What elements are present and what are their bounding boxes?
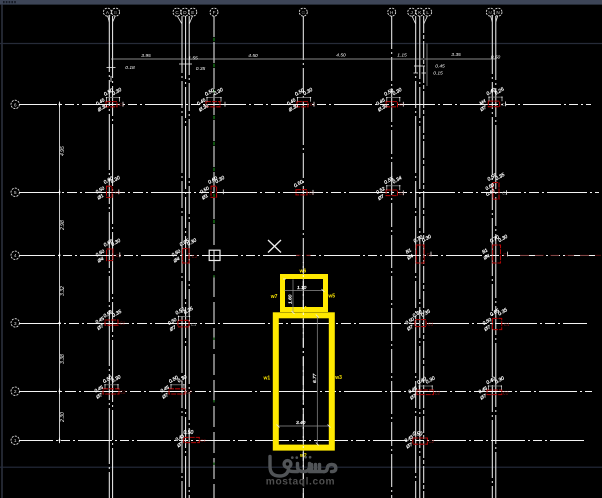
svg-text:4.50: 4.50 [336, 53, 346, 59]
svg-text:1: 1 [14, 438, 17, 444]
svg-text:1.55: 1.55 [188, 56, 198, 62]
svg-text:G: G [302, 10, 306, 15]
svg-text:H: H [390, 10, 393, 15]
svg-text:C1: C1 [192, 254, 198, 259]
svg-text:F: F [213, 10, 216, 15]
svg-text:3: 3 [14, 321, 17, 327]
svg-text:C2: C2 [120, 389, 126, 394]
svg-text:C1: C1 [200, 438, 206, 443]
svg-text:C1: C1 [309, 190, 315, 195]
svg-text:0.15: 0.15 [433, 71, 443, 77]
svg-text:0.35: 0.35 [196, 66, 206, 72]
svg-text:6: 6 [14, 102, 17, 108]
svg-text:C1: C1 [504, 322, 510, 327]
svg-text:0.18: 0.18 [125, 65, 135, 71]
svg-text:C1: C1 [399, 191, 405, 196]
svg-text:C2: C2 [435, 390, 441, 395]
svg-text:3.95: 3.95 [141, 53, 151, 59]
svg-text:C2: C2 [503, 390, 509, 395]
svg-text:5: 5 [14, 190, 17, 196]
svg-text:3.32: 3.32 [60, 286, 66, 296]
svg-text:0.50: 0.50 [413, 432, 423, 438]
svg-text:w3: w3 [334, 375, 342, 381]
svg-text:C1: C1 [310, 102, 316, 107]
svg-text:3.38: 3.38 [60, 354, 66, 364]
svg-text:4.95: 4.95 [60, 146, 66, 156]
svg-text:C1: C1 [120, 321, 126, 326]
svg-text:C1: C1 [116, 253, 122, 258]
svg-text:2: 2 [14, 389, 17, 395]
svg-text:N: N [496, 10, 499, 15]
svg-text:J: J [411, 10, 413, 15]
svg-text:4: 4 [14, 253, 17, 259]
svg-text:w6: w6 [299, 269, 307, 275]
svg-text:C2: C2 [428, 439, 434, 444]
svg-text:0.45: 0.45 [435, 64, 445, 70]
svg-text:3.40: 3.40 [296, 420, 306, 426]
svg-text:C2: C2 [186, 389, 192, 394]
svg-text:1.60: 1.60 [288, 294, 294, 304]
svg-text:M: M [488, 10, 492, 15]
svg-text:0.50: 0.50 [491, 55, 501, 61]
svg-text:2.30: 2.30 [60, 412, 66, 423]
svg-text:1.15: 1.15 [397, 53, 407, 59]
svg-text:0.50: 0.50 [184, 430, 194, 436]
svg-text:C1: C1 [428, 321, 434, 326]
svg-text:C1: C1 [191, 322, 197, 327]
svg-text:B: B [114, 10, 117, 15]
svg-text:2.98: 2.98 [60, 220, 66, 231]
svg-text:w5: w5 [327, 294, 335, 300]
svg-text:w1: w1 [263, 376, 271, 382]
svg-text:C1: C1 [399, 102, 405, 107]
svg-text:1.10: 1.10 [297, 285, 307, 291]
svg-text:L: L [426, 10, 429, 15]
svg-text:C1: C1 [502, 190, 508, 195]
svg-text:w7: w7 [270, 294, 278, 300]
svg-text:C1: C1 [115, 190, 121, 195]
svg-text:3.35: 3.35 [451, 52, 461, 58]
svg-text:4.50: 4.50 [248, 53, 258, 59]
svg-text:C1: C1 [427, 252, 433, 257]
svg-text:E: E [191, 10, 194, 15]
svg-text:C1: C1 [119, 102, 125, 107]
svg-text:C1: C1 [503, 252, 509, 257]
svg-text:6.77: 6.77 [312, 373, 318, 383]
svg-text:mostaql.com: mostaql.com [266, 476, 335, 487]
svg-text:C1: C1 [501, 102, 507, 107]
